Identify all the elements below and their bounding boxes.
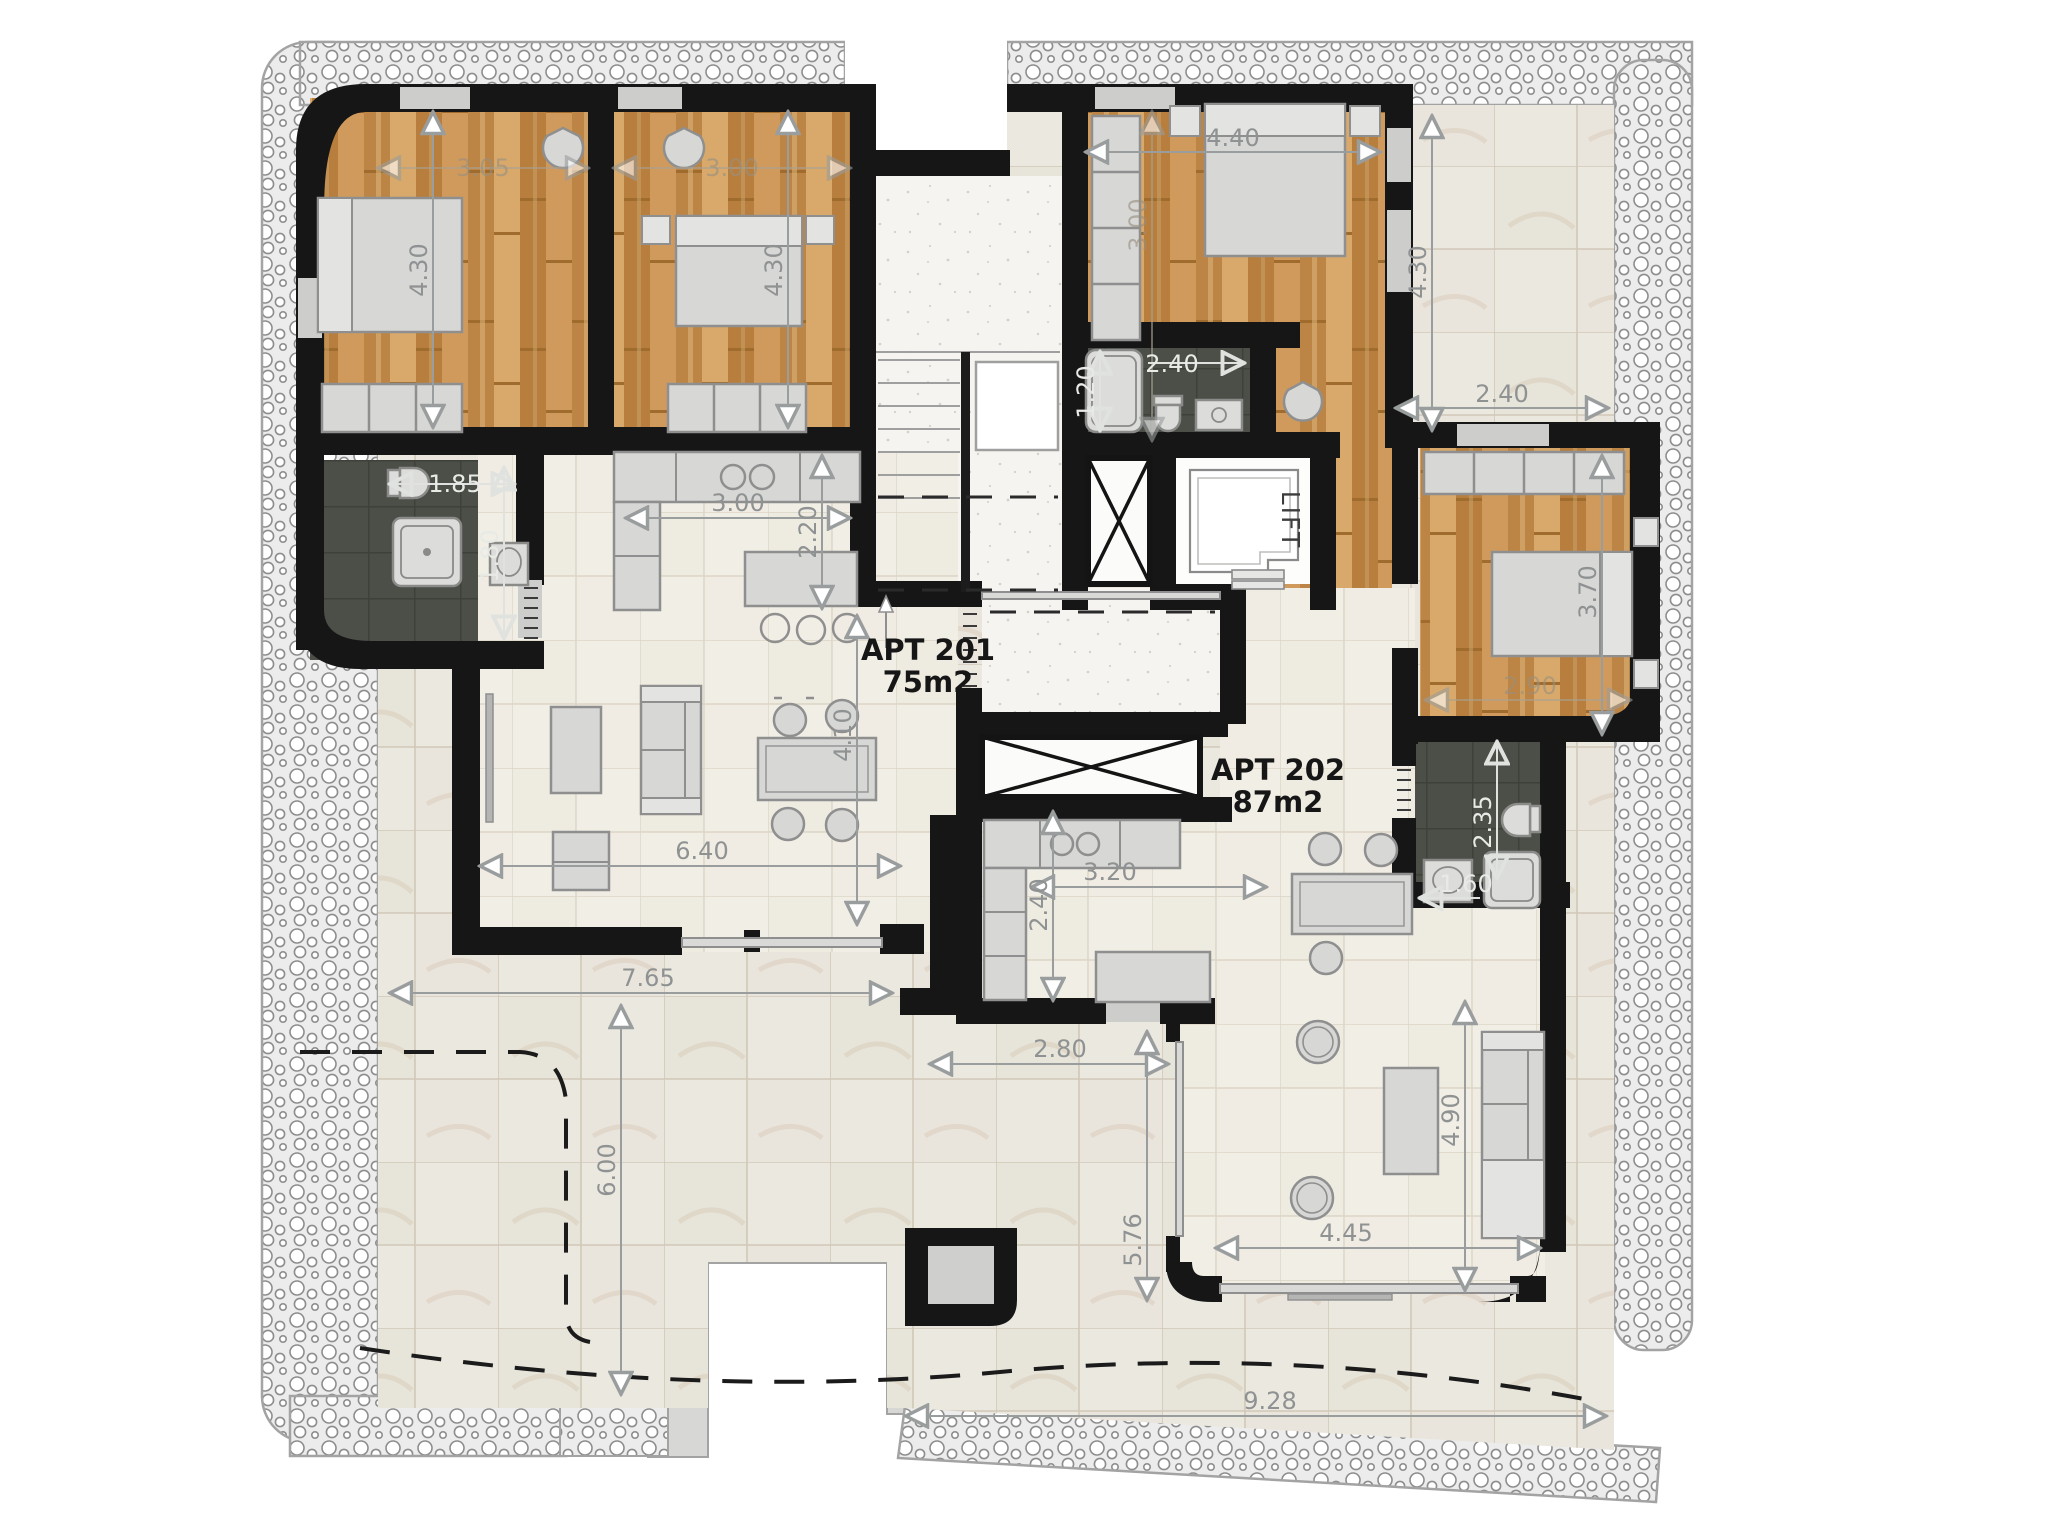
dim-kitchen2-width: 3.20 [1083,858,1136,886]
sink [1196,400,1242,430]
dim-east-terrace-width: 2.40 [1475,380,1528,408]
coffee-table [551,707,601,793]
dim-bed1-width: 3.05 [456,154,509,182]
stair-void [976,362,1058,450]
dim-living2-width: 4.45 [1319,1219,1372,1247]
kitchen-island-apt202 [1096,952,1210,1002]
dim-kitchen2-depth: 2.40 [1025,878,1053,931]
dim-bath1-height: 1.80 [476,529,504,582]
dim-master-bed-width: 4.40 [1206,124,1259,152]
apt201-living-floor [478,452,958,952]
dim-bed2-height: 4.30 [760,243,788,296]
dim-living1-height: 4.10 [829,708,857,761]
dim-terrace1-height: 6.00 [593,1143,621,1196]
chair [1365,834,1397,866]
lift-door [1232,570,1284,579]
dim-bath2-width: 2.40 [1145,350,1198,378]
dim-terrace2-width: 2.80 [1033,1035,1086,1063]
dim-bath3-width: 1.60 [1439,870,1492,898]
dim-bath1-width: 1.85 [428,470,481,498]
apt202-label: APT 202 [1211,753,1345,787]
toilet [1530,806,1540,832]
floor-plan-page: LIFT [0,0,2048,1536]
toilet [1154,396,1182,405]
sofa [1482,1032,1544,1238]
dim-bed1-height: 4.30 [405,243,433,296]
dim-living1-width: 6.40 [675,837,728,865]
dim-master-bed-height: 3.00 [1124,198,1152,251]
dim-south-terrace-width: 9.28 [1243,1387,1296,1415]
dim-bed3-height: 3.70 [1574,565,1602,618]
dim-terrace2-height: 5.76 [1119,1213,1147,1266]
apt202-west-window [1176,1042,1183,1236]
landing-threshold [982,592,1220,599]
lift-label: LIFT [1276,491,1305,550]
stair-handrail [961,352,970,592]
apt201-label: APT 201 [861,633,995,667]
sofa [641,686,701,814]
dim-bath3-height: 2.35 [1469,795,1497,848]
chair [772,808,804,840]
column-core [928,1246,994,1304]
dim-bed3-width: 2.90 [1503,672,1556,700]
apt201-terrace-door [682,938,882,947]
apt202-terrace-door [1220,1284,1518,1293]
tv-panel [486,694,493,822]
dim-living2-height: 4.90 [1437,1093,1465,1146]
chair [826,809,858,841]
dim-east-terrace-height: 4.30 [1404,245,1432,298]
tv-bench [1288,1294,1392,1300]
chair [1310,942,1342,974]
coffee-table [1384,1068,1438,1174]
bottom-cutout [710,1264,886,1536]
apt201-area: 75m2 [883,665,974,699]
dim-kitchen1-depth: 2.20 [794,505,822,558]
bed-bedroom1 [318,198,462,332]
apt202-area: 87m2 [1233,785,1324,819]
dim-bed2-width: 3.00 [705,154,758,182]
dim-kitchen1-width: 3.00 [711,489,764,517]
floor-plan-svg: LIFT [0,0,2048,1536]
chair [1309,833,1341,865]
dim-bath2-height: 1.20 [1072,365,1100,418]
lift-shaft: LIFT [1176,458,1310,589]
dim-terrace1-width: 7.65 [621,964,674,992]
kitchen-island-apt201 [745,552,857,606]
